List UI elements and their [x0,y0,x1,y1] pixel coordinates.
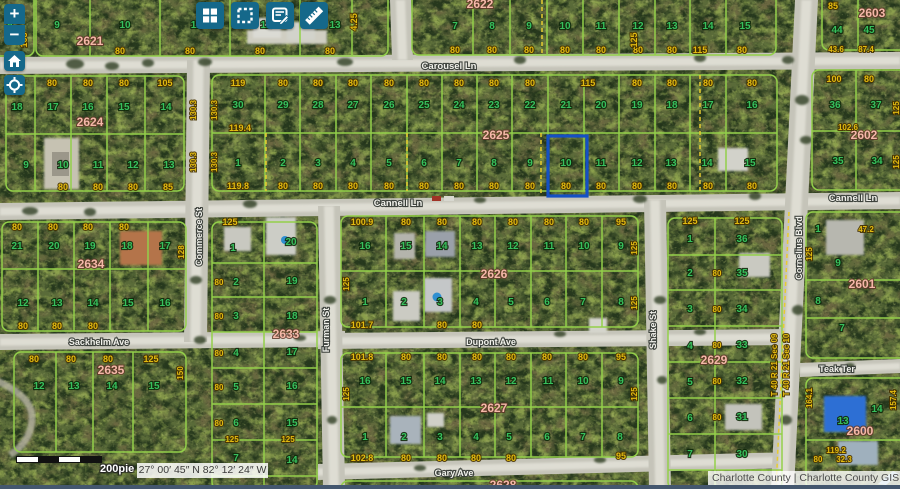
svg-text:15: 15 [286,418,298,429]
svg-text:80: 80 [667,181,677,191]
svg-text:130.3: 130.3 [189,99,198,120]
svg-text:80: 80 [437,217,447,227]
svg-text:9: 9 [618,241,624,252]
svg-text:2600: 2600 [847,424,874,438]
svg-text:17: 17 [286,347,298,358]
svg-text:13: 13 [470,376,482,387]
svg-text:2: 2 [401,432,407,443]
svg-text:Furman St: Furman St [321,308,331,353]
svg-text:80: 80 [713,305,722,314]
svg-text:13: 13 [329,20,341,31]
svg-text:14: 14 [87,298,99,309]
svg-text:17: 17 [159,241,171,252]
svg-text:10: 10 [577,376,589,387]
svg-text:119: 119 [231,78,246,88]
svg-text:101.8: 101.8 [351,352,374,362]
svg-text:10: 10 [57,160,69,171]
svg-text:80: 80 [632,78,642,88]
svg-text:14: 14 [106,381,118,392]
svg-text:14: 14 [434,376,446,387]
svg-text:80: 80 [472,320,482,330]
svg-text:80: 80 [58,182,68,192]
svg-text:10: 10 [119,20,131,31]
svg-text:3: 3 [315,158,321,169]
svg-text:29: 29 [277,100,289,111]
svg-text:Cannell Ln: Cannell Ln [829,193,878,204]
svg-text:80: 80 [472,217,482,227]
svg-text:12: 12 [632,21,644,32]
svg-text:43.6: 43.6 [828,45,844,54]
svg-text:14: 14 [436,241,448,252]
svg-text:7: 7 [687,449,693,460]
svg-text:19: 19 [286,276,298,287]
svg-text:8: 8 [491,158,497,169]
svg-text:2: 2 [401,297,407,308]
svg-text:80: 80 [703,181,713,191]
svg-text:80: 80 [419,181,429,191]
svg-text:3: 3 [233,311,239,322]
svg-text:2626: 2626 [481,267,508,281]
svg-text:11: 11 [596,21,607,32]
svg-text:16: 16 [286,381,298,392]
svg-text:125: 125 [629,32,639,47]
svg-text:3: 3 [437,432,443,443]
svg-text:32.3: 32.3 [836,455,852,464]
svg-text:34: 34 [736,304,748,315]
svg-text:80: 80 [313,78,323,88]
svg-text:80: 80 [596,181,606,191]
svg-text:16: 16 [159,298,171,309]
svg-text:9: 9 [23,160,29,171]
svg-text:80: 80 [747,181,757,191]
svg-text:14: 14 [701,158,713,169]
svg-text:6: 6 [544,297,550,308]
svg-text:4: 4 [473,432,479,443]
svg-text:125: 125 [630,387,639,401]
svg-text:31: 31 [736,412,748,423]
svg-text:80: 80 [119,222,129,232]
svg-text:80: 80 [255,46,265,56]
svg-text:12: 12 [507,241,519,252]
svg-text:157.4: 157.4 [889,389,898,410]
svg-text:2: 2 [687,268,693,279]
svg-text:20: 20 [285,237,297,248]
svg-text:8: 8 [815,296,821,307]
svg-text:Shake St: Shake St [648,311,658,349]
svg-text:80: 80 [48,222,58,232]
svg-text:80: 80 [506,453,516,463]
svg-text:2622: 2622 [467,0,494,11]
svg-text:80: 80 [471,453,481,463]
svg-text:80: 80 [713,413,722,422]
svg-text:7: 7 [452,21,458,32]
svg-text:13: 13 [51,298,63,309]
svg-text:13: 13 [665,158,677,169]
svg-text:Gary Ave: Gary Ave [435,468,474,478]
svg-text:115: 115 [581,78,596,88]
svg-text:20: 20 [595,100,607,111]
svg-text:11: 11 [596,158,607,169]
svg-text:80: 80 [667,45,677,55]
svg-text:9: 9 [618,376,624,387]
svg-text:95: 95 [616,217,626,227]
svg-text:80: 80 [215,278,224,287]
svg-text:80: 80 [525,78,535,88]
svg-text:80: 80 [814,455,823,464]
svg-text:15: 15 [118,102,130,113]
svg-text:1: 1 [362,432,368,443]
svg-text:18: 18 [121,241,133,252]
svg-text:130.3: 130.3 [210,99,219,120]
svg-text:80: 80 [419,78,429,88]
svg-text:16: 16 [359,241,371,252]
svg-text:80: 80 [12,222,22,232]
svg-text:80: 80 [437,320,447,330]
svg-text:80: 80 [579,217,589,227]
svg-text:7: 7 [456,158,462,169]
svg-text:80: 80 [542,352,552,362]
svg-text:125: 125 [630,241,639,255]
svg-text:Cannell Ln: Cannell Ln [374,198,423,209]
svg-text:80: 80 [489,78,499,88]
svg-text:24: 24 [453,100,465,111]
svg-text:125: 125 [892,101,900,115]
svg-text:Commerce St: Commerce St [194,208,204,266]
svg-text:37: 37 [870,100,882,111]
svg-text:130.3: 130.3 [210,151,219,172]
svg-text:10: 10 [560,158,572,169]
svg-text:125: 125 [805,247,814,261]
svg-text:6: 6 [421,158,427,169]
svg-text:21: 21 [560,100,572,111]
svg-text:80: 80 [667,78,677,88]
svg-text:80: 80 [66,354,76,364]
svg-text:4: 4 [473,297,479,308]
svg-text:4.25: 4.25 [349,13,359,31]
svg-text:80: 80 [864,74,874,84]
svg-text:80: 80 [450,45,460,55]
svg-text:7: 7 [580,432,586,443]
svg-text:26: 26 [383,100,395,111]
svg-text:6: 6 [687,413,693,424]
svg-text:9: 9 [527,158,533,169]
svg-text:125: 125 [225,435,239,444]
svg-text:2634: 2634 [78,257,105,271]
svg-text:80: 80 [47,78,57,88]
svg-text:18: 18 [11,102,23,113]
svg-text:35: 35 [832,156,844,167]
svg-text:4: 4 [687,341,693,352]
svg-text:17: 17 [47,102,59,113]
svg-text:7: 7 [839,323,845,334]
svg-text:80: 80 [737,45,747,55]
svg-text:2625: 2625 [483,128,510,142]
svg-text:1: 1 [815,224,821,235]
svg-text:28: 28 [312,100,324,111]
svg-text:34: 34 [871,156,883,167]
svg-text:80: 80 [348,181,358,191]
svg-text:13: 13 [666,21,678,32]
svg-text:125: 125 [892,155,900,169]
svg-text:2621: 2621 [77,34,104,48]
svg-text:80: 80 [524,45,534,55]
svg-text:80: 80 [713,269,722,278]
svg-text:80: 80 [713,341,722,350]
svg-text:5: 5 [506,432,512,443]
svg-text:15: 15 [739,21,751,32]
svg-text:80: 80 [454,181,464,191]
svg-text:6: 6 [544,432,550,443]
svg-text:16: 16 [82,102,94,113]
svg-text:80: 80 [578,352,588,362]
svg-text:11: 11 [543,376,554,387]
svg-text:13: 13 [163,160,175,171]
svg-text:80: 80 [560,45,570,55]
svg-text:3: 3 [437,297,443,308]
svg-text:30: 30 [736,449,748,460]
svg-text:1: 1 [687,234,693,245]
svg-text:80: 80 [384,181,394,191]
svg-text:80: 80 [348,78,358,88]
svg-text:15: 15 [122,298,134,309]
svg-text:105: 105 [157,78,172,88]
svg-text:119.4: 119.4 [229,123,251,133]
svg-text:80: 80 [52,321,62,331]
svg-text:100: 100 [826,74,841,84]
svg-text:125: 125 [143,354,158,364]
svg-text:80: 80 [88,321,98,331]
svg-text:80: 80 [325,46,335,56]
svg-text:18: 18 [666,100,678,111]
svg-text:100.9: 100.9 [351,217,374,227]
svg-text:33: 33 [736,340,748,351]
svg-text:102.8: 102.8 [351,453,374,463]
svg-text:101.7: 101.7 [351,320,374,330]
svg-text:19: 19 [631,100,643,111]
svg-text:8: 8 [489,21,495,32]
svg-text:80: 80 [747,78,757,88]
svg-text:36: 36 [736,234,748,245]
svg-text:12: 12 [631,158,643,169]
svg-text:18: 18 [286,311,298,322]
svg-text:1: 1 [230,243,236,254]
svg-text:11: 11 [93,160,104,171]
svg-text:80: 80 [703,78,713,88]
svg-text:128: 128 [177,245,186,259]
svg-text:1: 1 [235,158,241,169]
svg-text:1: 1 [362,297,368,308]
svg-text:80: 80 [506,352,516,362]
svg-text:125: 125 [630,296,639,310]
svg-text:87.4: 87.4 [858,45,874,54]
svg-text:15: 15 [148,381,160,392]
svg-text:4: 4 [233,348,239,359]
svg-text:25: 25 [418,100,430,111]
svg-text:130.3: 130.3 [189,151,198,172]
svg-text:80: 80 [215,349,224,358]
svg-text:119.2: 119.2 [826,446,846,455]
svg-text:16: 16 [746,100,758,111]
svg-text:Teak Ter: Teak Ter [819,364,855,374]
svg-text:4: 4 [350,158,356,169]
svg-text:5: 5 [233,382,239,393]
svg-text:17: 17 [702,100,714,111]
svg-text:80: 80 [313,181,323,191]
svg-text:3: 3 [687,304,693,315]
svg-text:13: 13 [68,381,80,392]
svg-text:9: 9 [54,20,60,31]
svg-text:80: 80 [215,419,224,428]
svg-text:2629: 2629 [701,353,728,367]
svg-text:9: 9 [835,258,841,269]
svg-text:14: 14 [702,21,714,32]
svg-text:80: 80 [544,217,554,227]
svg-text:14: 14 [871,404,883,415]
svg-text:80: 80 [384,78,394,88]
svg-text:9: 9 [526,21,532,32]
svg-text:80: 80 [103,354,113,364]
svg-text:80: 80 [401,217,411,227]
svg-text:21: 21 [11,241,23,252]
svg-text:125: 125 [281,435,295,444]
svg-text:2633: 2633 [273,327,300,341]
svg-text:80: 80 [93,182,103,192]
svg-text:12: 12 [505,376,517,387]
svg-text:85: 85 [828,1,838,11]
svg-text:T 40 R 21 Sec 10: T 40 R 21 Sec 10 [782,333,791,396]
svg-text:45: 45 [863,25,875,36]
svg-text:13: 13 [471,241,483,252]
svg-text:2601: 2601 [849,277,876,291]
svg-text:80: 80 [454,78,464,88]
svg-text:119.8: 119.8 [227,181,249,191]
svg-text:80: 80 [561,181,571,191]
svg-text:20: 20 [48,241,60,252]
svg-text:27: 27 [347,100,359,111]
svg-text:80: 80 [632,181,642,191]
svg-text:95: 95 [616,352,626,362]
svg-text:10: 10 [578,241,590,252]
svg-text:80: 80 [278,78,288,88]
svg-text:14: 14 [160,102,172,113]
svg-text:23: 23 [488,100,500,111]
svg-text:80: 80 [437,453,447,463]
svg-text:15: 15 [744,158,756,169]
svg-text:80: 80 [525,181,535,191]
svg-text:47.2: 47.2 [858,225,874,234]
svg-text:80: 80 [401,352,411,362]
svg-text:115: 115 [693,45,708,55]
svg-text:8: 8 [617,432,623,443]
svg-text:44: 44 [831,25,843,36]
svg-text:35: 35 [736,268,748,279]
svg-text:80: 80 [83,222,93,232]
svg-text:12: 12 [33,381,45,392]
svg-text:102.6: 102.6 [838,123,859,132]
svg-text:80: 80 [713,377,722,386]
svg-text:80: 80 [437,352,447,362]
svg-text:Dupont Ave: Dupont Ave [466,337,516,347]
svg-text:80: 80 [83,78,93,88]
svg-text:2624: 2624 [77,115,104,129]
svg-text:80: 80 [185,46,195,56]
svg-text:2627: 2627 [481,401,508,415]
svg-text:80: 80 [596,45,606,55]
svg-text:80: 80 [29,354,39,364]
svg-text:80: 80 [128,182,138,192]
svg-text:5: 5 [687,377,693,388]
svg-text:5: 5 [508,297,514,308]
svg-text:30: 30 [232,100,244,111]
svg-text:2: 2 [233,277,239,288]
svg-text:5: 5 [386,158,392,169]
svg-text:19: 19 [84,241,96,252]
svg-text:80: 80 [119,78,129,88]
svg-text:125: 125 [342,387,351,401]
svg-text:95: 95 [616,451,626,461]
svg-text:80: 80 [115,46,125,56]
svg-text:125: 125 [342,277,351,291]
svg-text:6: 6 [233,418,239,429]
svg-text:7: 7 [580,297,586,308]
svg-text:164.1: 164.1 [805,387,814,408]
svg-text:2603: 2603 [859,6,886,20]
svg-text:11: 11 [544,241,555,252]
svg-text:Carousel Ln: Carousel Ln [422,61,477,72]
svg-text:80: 80 [489,181,499,191]
svg-text:2: 2 [280,158,286,169]
svg-text:80: 80 [487,45,497,55]
svg-text:Cornelius Blvd: Cornelius Blvd [794,216,804,280]
svg-text:10: 10 [559,21,571,32]
svg-text:80: 80 [508,217,518,227]
svg-text:14: 14 [286,455,298,466]
svg-text:8: 8 [618,297,624,308]
svg-text:125: 125 [734,216,749,226]
svg-text:80: 80 [215,312,224,321]
svg-text:T 40 R 21 Sec 09: T 40 R 21 Sec 09 [770,333,779,396]
svg-text:12: 12 [17,298,29,309]
svg-text:80: 80 [18,321,28,331]
svg-text:150: 150 [176,366,185,380]
svg-text:15: 15 [400,376,412,387]
svg-text:125: 125 [682,216,697,226]
svg-text:12: 12 [127,160,139,171]
svg-text:32: 32 [736,376,748,387]
svg-text:125: 125 [222,217,237,227]
svg-text:80: 80 [278,181,288,191]
svg-text:2635: 2635 [98,363,125,377]
svg-text:80: 80 [215,383,224,392]
svg-text:80: 80 [472,352,482,362]
svg-text:13: 13 [837,416,849,427]
svg-text:85: 85 [163,182,173,192]
svg-text:15: 15 [400,241,412,252]
svg-text:Sackhelm Ave: Sackhelm Ave [69,337,129,347]
svg-text:22: 22 [524,100,536,111]
svg-text:16: 16 [359,376,371,387]
svg-text:80: 80 [401,453,411,463]
svg-text:36: 36 [829,100,841,111]
